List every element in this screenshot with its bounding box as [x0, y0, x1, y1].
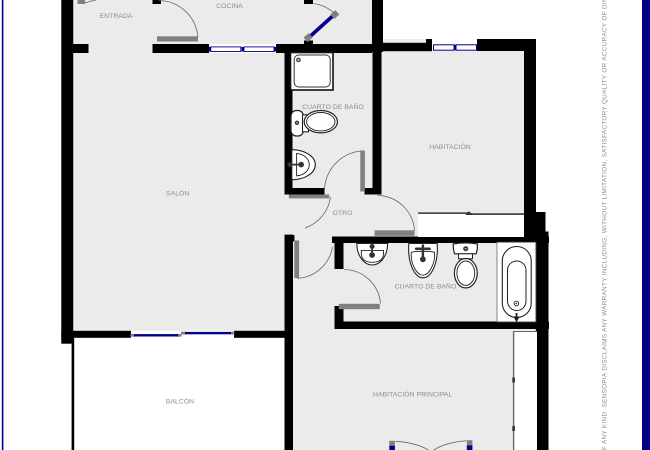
svg-text:CUARTO DE BAÑO: CUARTO DE BAÑO — [302, 102, 364, 111]
svg-text:OTRO: OTRO — [333, 210, 353, 217]
svg-text:SALÓN: SALÓN — [166, 189, 189, 198]
svg-text:CUARTO DE BAÑO: CUARTO DE BAÑO — [395, 281, 457, 290]
svg-text:COCINA: COCINA — [216, 3, 243, 10]
svg-text:HABITACIÓN PRINCIPAL: HABITACIÓN PRINCIPAL — [373, 390, 452, 399]
svg-text:F ANY KIND. SENSOPIA DISCLAIMS: F ANY KIND. SENSOPIA DISCLAIMS ANY WARRA… — [602, 0, 609, 450]
svg-text:HABITACIÓN: HABITACIÓN — [429, 142, 471, 151]
svg-text:BALCÓN: BALCÓN — [166, 397, 194, 406]
svg-text:ENTRADA: ENTRADA — [100, 13, 133, 20]
